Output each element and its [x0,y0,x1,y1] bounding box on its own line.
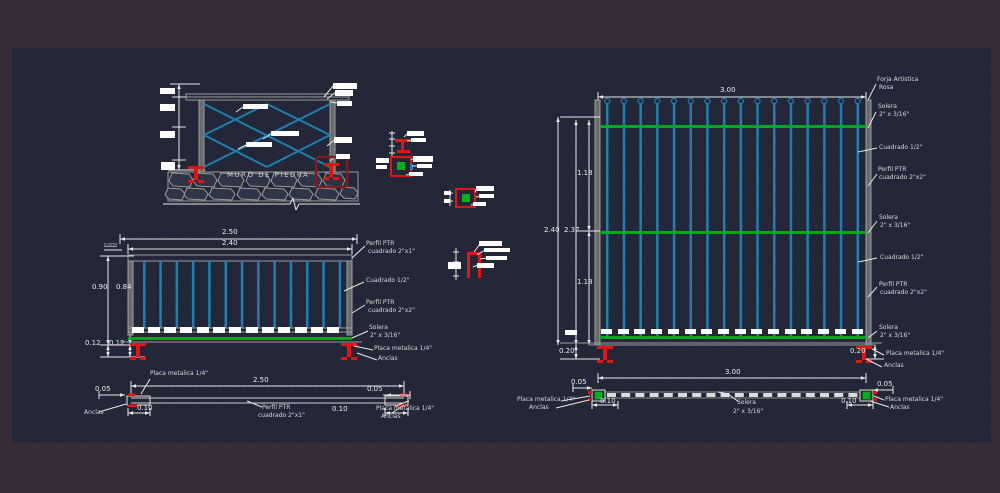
illegible-label-block [618,329,629,334]
illegible-label-block [132,327,144,333]
illegible-label-block [486,256,507,260]
right-elev-callout-1-line2: 2" x 3/16" [879,112,909,118]
left-elev-callout-3-line1: Solera [369,325,388,331]
right-elev-callout-9-line1: Anclas [884,363,904,369]
illegible-label-block [295,327,307,333]
illegible-label-block [409,172,423,176]
left-plan-dim-width: 2.50 [253,377,269,384]
right-plan-label-anclas-left: Anclas [529,405,549,411]
right-elev-callout-0-line1: Forja Artistica [877,77,918,83]
right-elev-dim-width: 3.00 [720,87,736,94]
illegible-label-block [835,329,846,334]
illegible-label-block [413,156,433,162]
left-elev-dim-base-b: 0.12 [109,340,125,347]
section-title: MURO DE PIEDRA [227,172,309,179]
right-plan-dim-plate-left: 0.10 [600,398,616,405]
right-elev-callout-3-line2: cuadrado 2"x2" [879,175,926,181]
left-plan-label-perfil-line2: cuadrado 2"x1" [258,413,305,419]
illegible-label-block [479,194,494,198]
left-elev-dim-top-outer: 2.50 [222,229,238,236]
left-plan-label-placa-top: Placa metalica 1/4" [150,371,208,377]
illegible-label-block [476,186,494,191]
right-elev-dim-seg-bottom: 1.18 [577,279,593,286]
illegible-label-block [601,329,612,334]
right-elev-callout-4-line2: 2" x 3/16" [880,223,910,229]
right-elev-callout-0-line2: Rosa [879,85,893,91]
illegible-label-block [479,241,502,246]
right-elev-dim-base-right: 0.20 [850,348,866,355]
illegible-label-block [376,158,389,163]
illegible-label-block [213,327,225,333]
cad-workspace: MURO DE PIEDRA 2.50 2.40 0.0254 0.90 0.8… [0,0,1000,493]
illegible-label-block [852,329,863,334]
right-elev-callout-7-line2: 2" x 3/16" [880,333,910,339]
right-elev-callout-5-line1: Cuadrado 1/2" [880,255,923,261]
left-elev-callout-2-line1: Perfil PTR [366,300,394,306]
illegible-label-block [161,162,175,170]
illegible-label-block [444,191,451,195]
illegible-label-block [751,329,762,334]
illegible-label-block [262,327,274,333]
illegible-label-block [768,329,779,334]
illegible-label-block [164,327,176,333]
illegible-label-block [334,137,352,143]
left-plan-label-perfil-line1: Perfil PTR [262,405,290,411]
right-elev-callout-6-line2: cuadrado 2"x2" [880,290,927,296]
illegible-label-block [335,90,353,96]
illegible-label-block [160,104,175,111]
left-plan-dim-end-left: 0.05 [95,386,111,393]
illegible-label-block [448,262,461,269]
illegible-label-block [473,202,486,206]
right-elev-callout-6-line1: Perfil PTR [879,282,907,288]
illegible-label-block [407,131,424,136]
right-elev-callout-2-line1: Cuadrado 1/2" [879,145,922,151]
right-plan-label-anclas-right: Anclas [890,405,910,411]
left-elev-callout-3-line2: 2" x 3/16" [370,333,400,339]
illegible-label-block [160,131,175,138]
right-elev-callout-1-line1: Solera [878,104,897,110]
illegible-label-block [376,165,387,169]
illegible-label-block [668,329,679,334]
illegible-label-block [411,138,426,142]
illegible-label-block [337,101,352,106]
illegible-label-block [718,329,729,334]
left-elev-dim-top-inner: 2.40 [222,240,238,247]
right-elev-callout-7-line1: Solera [879,325,898,331]
illegible-label-block [148,327,160,333]
illegible-label-block [565,330,577,335]
illegible-label-block [243,104,268,109]
right-elev-callout-8-line1: Placa metalica 1/4" [886,351,944,357]
right-elev-dim-base-left: 0.20 [559,348,575,355]
left-elev-callout-5-line1: Anclas [378,356,398,362]
illegible-label-block [180,327,192,333]
left-elev-callout-0-line2: cuadrado 2"x1" [368,249,415,255]
illegible-label-block [484,248,510,252]
right-plan-label-solera-line2: 2" x 3/16" [733,409,763,415]
illegible-label-block [634,329,645,334]
illegible-label-block [311,327,323,333]
illegible-label-block [160,88,175,94]
right-plan-dim-width: 3.00 [725,369,741,376]
left-plan-label-placa-right: Placa metalica 1/4" [376,406,434,412]
left-elev-dim-base-a: 0.12 [85,340,101,347]
right-elev-dim-seg-top: 1.18 [577,170,593,177]
illegible-label-block [818,329,829,334]
left-elev-callout-1-line1: Cuadrado 1/2" [366,278,409,284]
left-plan-label-anclas-right: Anclas [381,414,401,420]
illegible-label-block [444,199,450,203]
illegible-label-block [327,327,339,333]
right-plan-label-solera-line1: Solera [737,400,756,406]
illegible-label-block [229,327,241,333]
right-plan-label-placa-right: Placa metalica 1/4" [885,397,943,403]
illegible-label-block [336,154,350,159]
illegible-label-block [246,142,272,147]
illegible-label-block [197,327,209,333]
illegible-label-block [417,164,432,168]
right-plan-dim-end-right: 0.05 [877,381,893,388]
left-elev-dim-height-inner: 0.84 [116,284,132,291]
left-elev-callout-0-line1: Perfil PTR [366,241,394,247]
left-elev-callout-4-line1: Placa metalica 1/4" [374,346,432,352]
left-plan-dim-end-right: 0.05 [367,386,383,393]
illegible-label-block [651,329,662,334]
right-plan-label-placa-left: Placa metalica 1/4" [517,397,575,403]
left-elev-callout-2-line2: cuadrado 2"x2" [368,308,415,314]
drawing-linework [0,0,1000,493]
right-elev-dim-height-inner: 2.37 [564,227,580,234]
right-elev-dim-height-outer: 2.40 [544,227,560,234]
right-elev-callout-4-line1: Solera [879,215,898,221]
left-plan-dim-plate-left: 0.10 [137,405,153,412]
illegible-label-block [477,263,494,268]
right-plan-dim-end-left: 0.05 [571,379,587,386]
left-plan-dim-plate-right: 0.10 [332,406,348,413]
illegible-label-block [801,329,812,334]
illegible-label-block [735,329,746,334]
illegible-label-block [701,329,712,334]
left-elev-dim-height-outer: 0.90 [92,284,108,291]
illegible-label-block [271,131,299,136]
right-plan-dim-plate-right: 0.10 [841,398,857,405]
illegible-label-block [685,329,696,334]
illegible-label-block [278,327,290,333]
left-elev-dim-rail: 0.0254 [104,243,117,247]
right-elev-callout-3-line1: Perfil PTR [878,167,906,173]
illegible-label-block [246,327,258,333]
illegible-label-block [785,329,796,334]
left-plan-label-anclas-left: Anclas [84,410,104,416]
illegible-label-block [333,83,357,89]
